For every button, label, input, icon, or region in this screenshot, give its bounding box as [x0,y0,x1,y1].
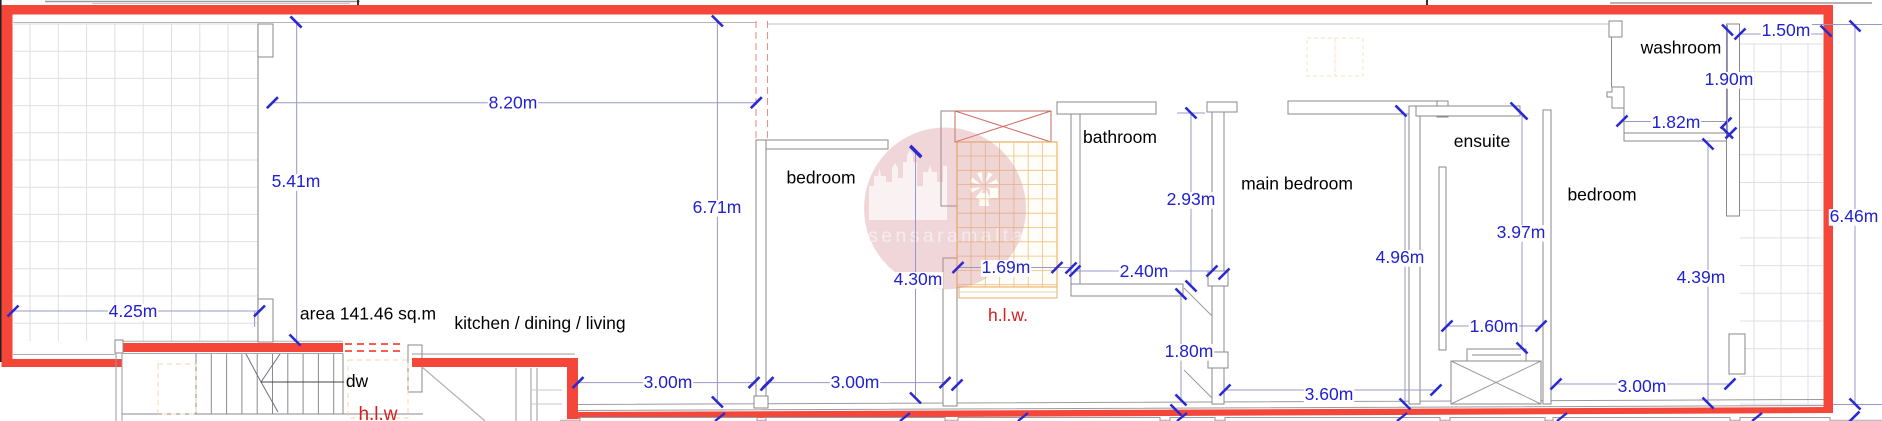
svg-text:bedroom: bedroom [1567,185,1636,205]
svg-text:washroom: washroom [1640,38,1722,58]
svg-text:2.40m: 2.40m [1120,261,1169,281]
svg-text:4.30m: 4.30m [894,269,943,289]
svg-text:3.60m: 3.60m [1305,384,1354,404]
svg-text:4.25m: 4.25m [109,301,158,321]
svg-text:bedroom: bedroom [786,168,855,188]
svg-text:3.97m: 3.97m [1497,222,1546,242]
svg-text:1.60m: 1.60m [1470,316,1519,336]
svg-text:1.82m: 1.82m [1652,112,1701,132]
svg-text:h.l.w: h.l.w [358,404,397,421]
svg-text:6.46m: 6.46m [1830,206,1879,226]
svg-text:3.00m: 3.00m [1618,376,1667,396]
svg-text:sensaramalta: sensaramalta [868,225,1026,247]
svg-text:8.20m: 8.20m [489,93,538,113]
svg-text:bathroom: bathroom [1083,127,1157,147]
svg-text:area 141.46 sq.m: area 141.46 sq.m [300,304,436,324]
svg-text:dw: dw [346,371,369,391]
svg-text:ensuite: ensuite [1454,131,1510,151]
svg-text:h.l.w.: h.l.w. [988,305,1028,325]
svg-text:kitchen / dining / living: kitchen / dining / living [454,313,625,333]
svg-text:6.71m: 6.71m [693,197,742,217]
svg-text:1.90m: 1.90m [1705,69,1754,89]
svg-text:main bedroom: main bedroom [1241,174,1353,194]
svg-text:2.93m: 2.93m [1167,189,1216,209]
svg-text:1.50m: 1.50m [1762,20,1811,40]
svg-text:4.39m: 4.39m [1677,267,1726,287]
svg-text:3.00m: 3.00m [831,372,880,392]
svg-text:1.69m: 1.69m [982,257,1031,277]
svg-text:1.80m: 1.80m [1165,341,1214,361]
svg-text:5.41m: 5.41m [272,171,321,191]
svg-text:3.00m: 3.00m [644,372,693,392]
svg-text:4.96m: 4.96m [1376,247,1425,267]
